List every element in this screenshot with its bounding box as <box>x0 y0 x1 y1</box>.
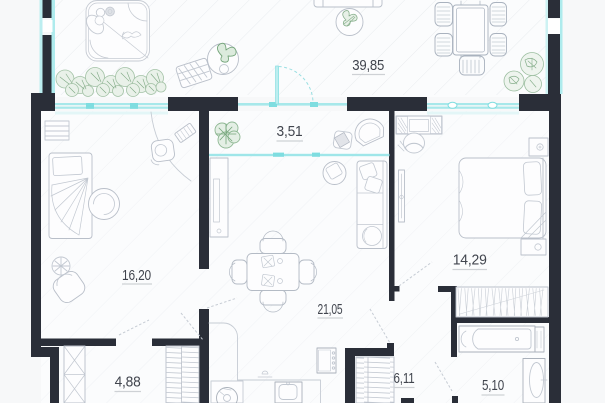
svg-text:16,20: 16,20 <box>122 268 151 284</box>
svg-text:4,88: 4,88 <box>115 375 141 391</box>
svg-text:5,10: 5,10 <box>482 378 504 394</box>
svg-text:3,51: 3,51 <box>277 124 303 140</box>
svg-text:14,29: 14,29 <box>453 253 487 269</box>
svg-text:39,85: 39,85 <box>352 58 384 74</box>
svg-text:21,05: 21,05 <box>318 302 343 318</box>
svg-text:6,11: 6,11 <box>394 371 415 387</box>
